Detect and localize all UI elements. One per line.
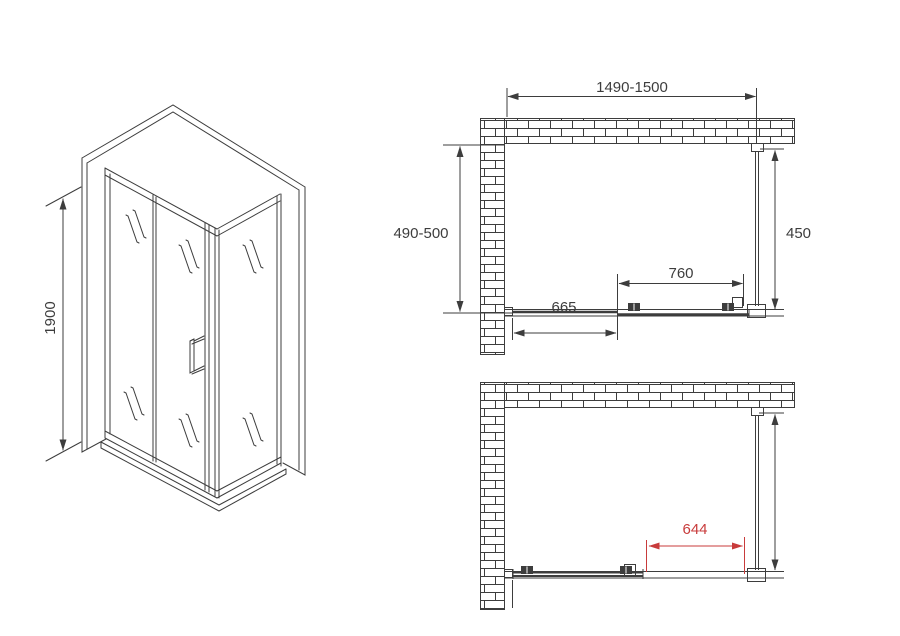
- wall-depth-label: 490-500: [393, 225, 448, 242]
- iso-back-walls: [82, 105, 305, 475]
- side-panel-depth-dimension: [760, 149, 784, 309]
- bottom-plan-door-assembly: [505, 565, 785, 609]
- height-dimension-label: 1900: [42, 301, 59, 334]
- iso-side-panel: [217, 194, 281, 498]
- side-height-dimension: [759, 413, 784, 570]
- top-plan-side-panel: [748, 144, 766, 318]
- top-plan-walls: [481, 119, 795, 355]
- top-plan-view: 1490-1500 490-500 450 760 665: [393, 79, 811, 355]
- opening-width-label: 644: [682, 521, 707, 538]
- opening-width-dimension: [647, 537, 745, 574]
- iso-front-frame: [105, 168, 219, 498]
- door-width-label: 760: [668, 265, 693, 282]
- bottom-plan-side-panel: [748, 408, 766, 582]
- technical-drawing: 1900: [0, 0, 900, 636]
- isometric-view: 1900: [42, 105, 305, 511]
- bottom-plan-view: 644: [481, 383, 795, 610]
- overall-width-label: 1490-1500: [596, 79, 668, 96]
- top-plan-door-assembly: [505, 298, 785, 319]
- drawing-canvas: 1900: [0, 0, 900, 636]
- side-panel-depth-label: 450: [786, 225, 811, 242]
- iso-base-tray: [101, 442, 286, 511]
- fixed-panel-width-dimension: [513, 318, 617, 340]
- iso-door-handle: [190, 336, 204, 374]
- fixed-panel-width-label: 665: [551, 299, 576, 316]
- glass-hatch-marks: [124, 210, 263, 447]
